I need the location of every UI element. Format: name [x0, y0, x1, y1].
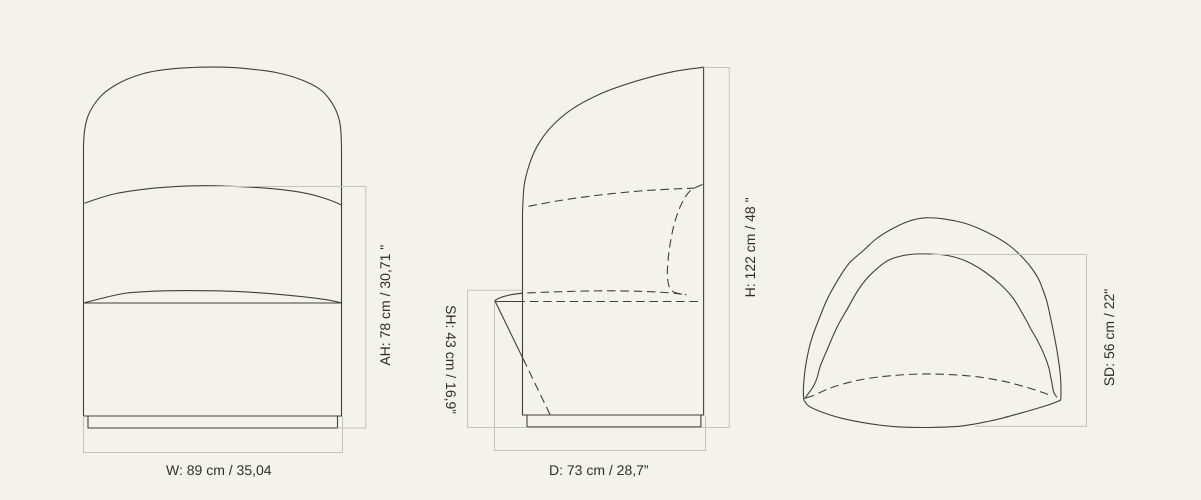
svg-text:W: 89 cm / 35,04: W: 89 cm / 35,04 [166, 462, 272, 478]
svg-text:AH: 78 cm / 30,71 ": AH: 78 cm / 30,71 " [377, 245, 393, 366]
svg-text:SD: 56 cm / 22": SD: 56 cm / 22" [1101, 289, 1117, 387]
svg-text:H: 122 cm / 48 ": H: 122 cm / 48 " [742, 197, 758, 297]
svg-text:D: 73 cm / 28,7”: D: 73 cm / 28,7” [549, 462, 649, 478]
svg-text:SH: 43 cm / 16,9”: SH: 43 cm / 16,9” [443, 305, 459, 414]
